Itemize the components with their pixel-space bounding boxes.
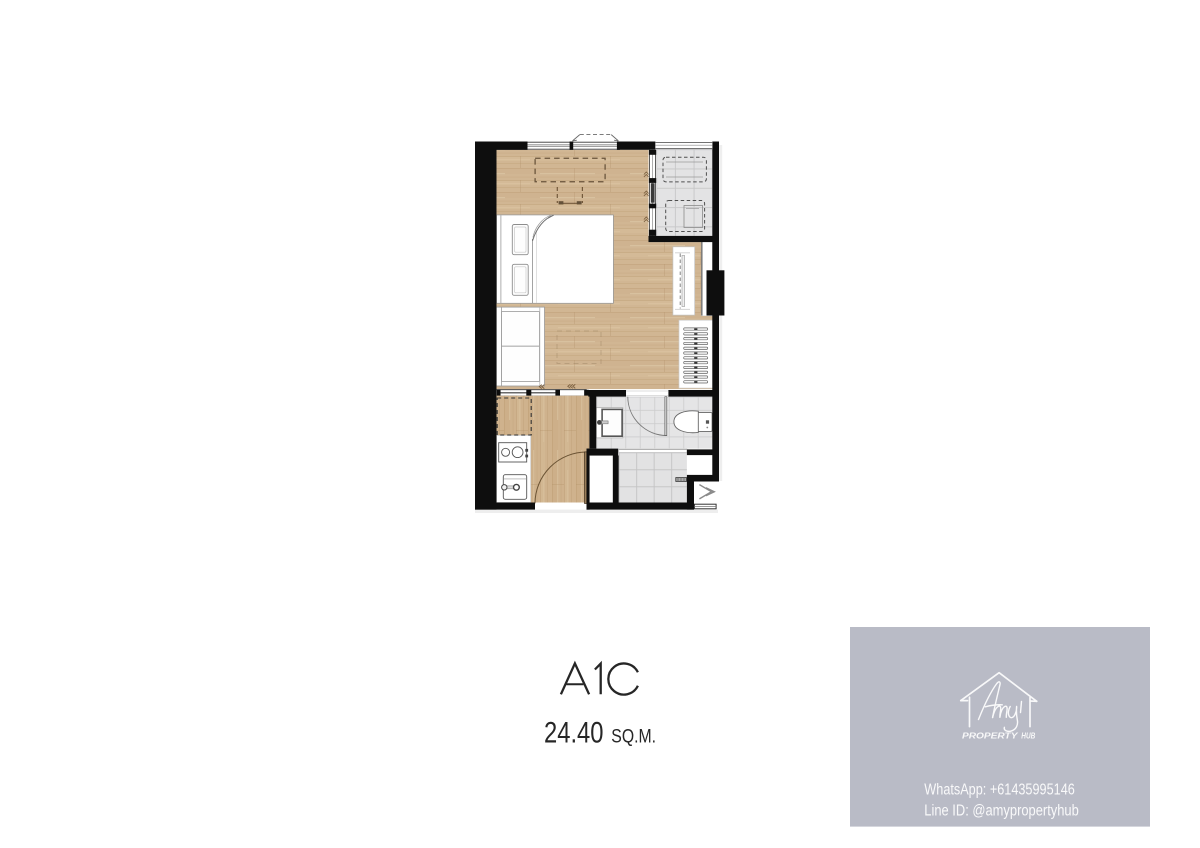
svg-text:WhatsApp: +61435995146: WhatsApp: +61435995146 (924, 782, 1075, 799)
svg-text:HUB: HUB (1021, 732, 1035, 741)
svg-text:PROPERTY: PROPERTY (962, 732, 1018, 741)
svg-text:SQ.M.: SQ.M. (611, 726, 656, 747)
svg-text:24.40: 24.40 (544, 716, 604, 749)
svg-text:Line ID: @amypropertyhub: Line ID: @amypropertyhub (924, 803, 1079, 820)
